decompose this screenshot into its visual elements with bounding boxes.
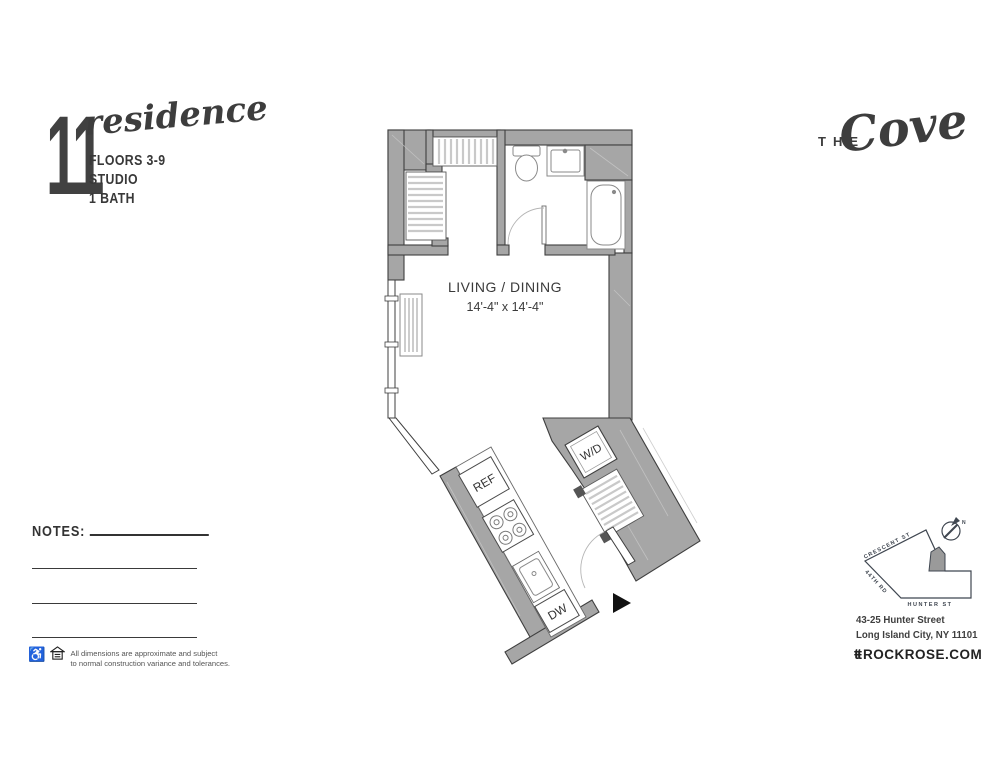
- notes-row: NOTES:: [32, 522, 209, 540]
- accessibility-icon: ♿: [28, 646, 45, 662]
- bath-door-swing: [508, 208, 544, 244]
- entry-closet-left: [406, 172, 446, 240]
- wall-bath-left: [497, 130, 505, 245]
- window-mullion: [385, 296, 398, 301]
- compass: N: [942, 517, 966, 540]
- disclaimer-text: All dimensions are approximate and subje…: [70, 646, 230, 668]
- entry-door-swing: [581, 532, 604, 588]
- notes-rule: [32, 568, 197, 569]
- notes-rule: [32, 637, 197, 638]
- wall-bath-bottom-stub: [497, 245, 509, 255]
- entry-closet-top: [433, 137, 497, 166]
- living-dining-dims: 14'-4" x 14'-4": [467, 300, 544, 314]
- equal-housing-icon: [50, 646, 65, 666]
- building-footprint: [929, 547, 945, 571]
- street-crescent: CRESCENT ST: [863, 532, 912, 561]
- window-wall: [385, 280, 439, 474]
- site-map: N CRESCENT ST 44TH RD HUNTER ST: [845, 515, 985, 615]
- floorplan-sheet: 11 residence FLOORS 3-9 STUDIO 1 BATH TH…: [0, 0, 1000, 773]
- window-mullion: [385, 342, 398, 347]
- notes-label: NOTES:: [32, 523, 85, 540]
- disclaimer: ♿ All dimensions are approximate and sub…: [28, 646, 328, 668]
- wall-top-bath: [497, 130, 632, 145]
- street-44rd: 44TH RD: [863, 569, 888, 595]
- window-mullion: [385, 388, 398, 393]
- window-diagonal: [389, 418, 439, 474]
- street-hunter: HUNTER ST: [908, 602, 953, 608]
- wall-left: [388, 130, 404, 280]
- wall-top-thin: [428, 130, 500, 137]
- rockrose-logo-icon: ŧŧ: [854, 646, 860, 663]
- notes-write-line: [90, 522, 209, 536]
- toilet-bowl: [516, 155, 538, 181]
- compass-n: N: [962, 520, 966, 526]
- bath-door-leaf: [542, 206, 546, 244]
- radiator-unit: [400, 294, 422, 356]
- bath-sink-basin: [551, 150, 580, 172]
- wall-right-thick: [609, 253, 632, 420]
- tub-faucet: [612, 190, 615, 193]
- address-line2: Long Island City, NY 11101: [856, 628, 978, 643]
- sink-faucet: [563, 149, 567, 153]
- living-dining-label: LIVING / DINING: [448, 279, 562, 295]
- notes-rule: [32, 603, 197, 604]
- entry-arrow-marker: [613, 593, 631, 613]
- website-row: ŧŧ ROCKROSE.COM: [854, 646, 982, 663]
- wall-bath-corner: [585, 145, 632, 180]
- address-block: 43-25 Hunter Street Long Island City, NY…: [856, 613, 978, 642]
- website-text: ROCKROSE.COM: [863, 647, 982, 662]
- tub-inner: [591, 185, 621, 245]
- address-line1: 43-25 Hunter Street: [856, 613, 978, 628]
